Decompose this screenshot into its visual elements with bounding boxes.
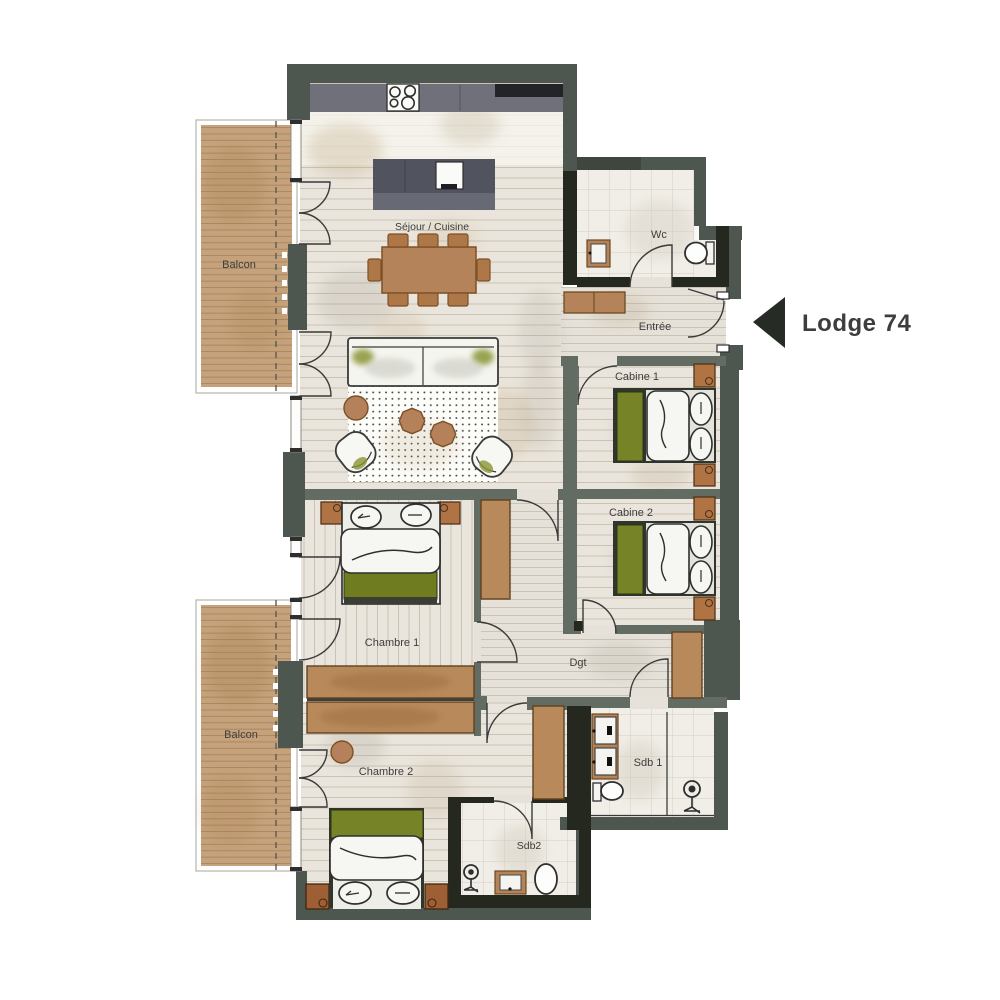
svg-text:Chambre 1: Chambre 1 [365, 637, 419, 649]
svg-text:Balcon: Balcon [224, 729, 258, 741]
svg-text:Cabine 1: Cabine 1 [615, 371, 659, 383]
svg-text:Sdb 1: Sdb 1 [634, 757, 663, 769]
svg-text:Dgt: Dgt [569, 657, 586, 669]
svg-text:Lodge 74: Lodge 74 [802, 310, 912, 337]
svg-text:Chambre 2: Chambre 2 [359, 766, 413, 778]
svg-text:Entrée: Entrée [639, 321, 671, 333]
svg-text:Wc: Wc [651, 229, 667, 241]
svg-text:Sdb2: Sdb2 [517, 840, 542, 852]
svg-text:Séjour / Cuisine: Séjour / Cuisine [395, 221, 469, 233]
svg-text:Cabine 2: Cabine 2 [609, 507, 653, 519]
svg-text:Balcon: Balcon [222, 259, 256, 271]
